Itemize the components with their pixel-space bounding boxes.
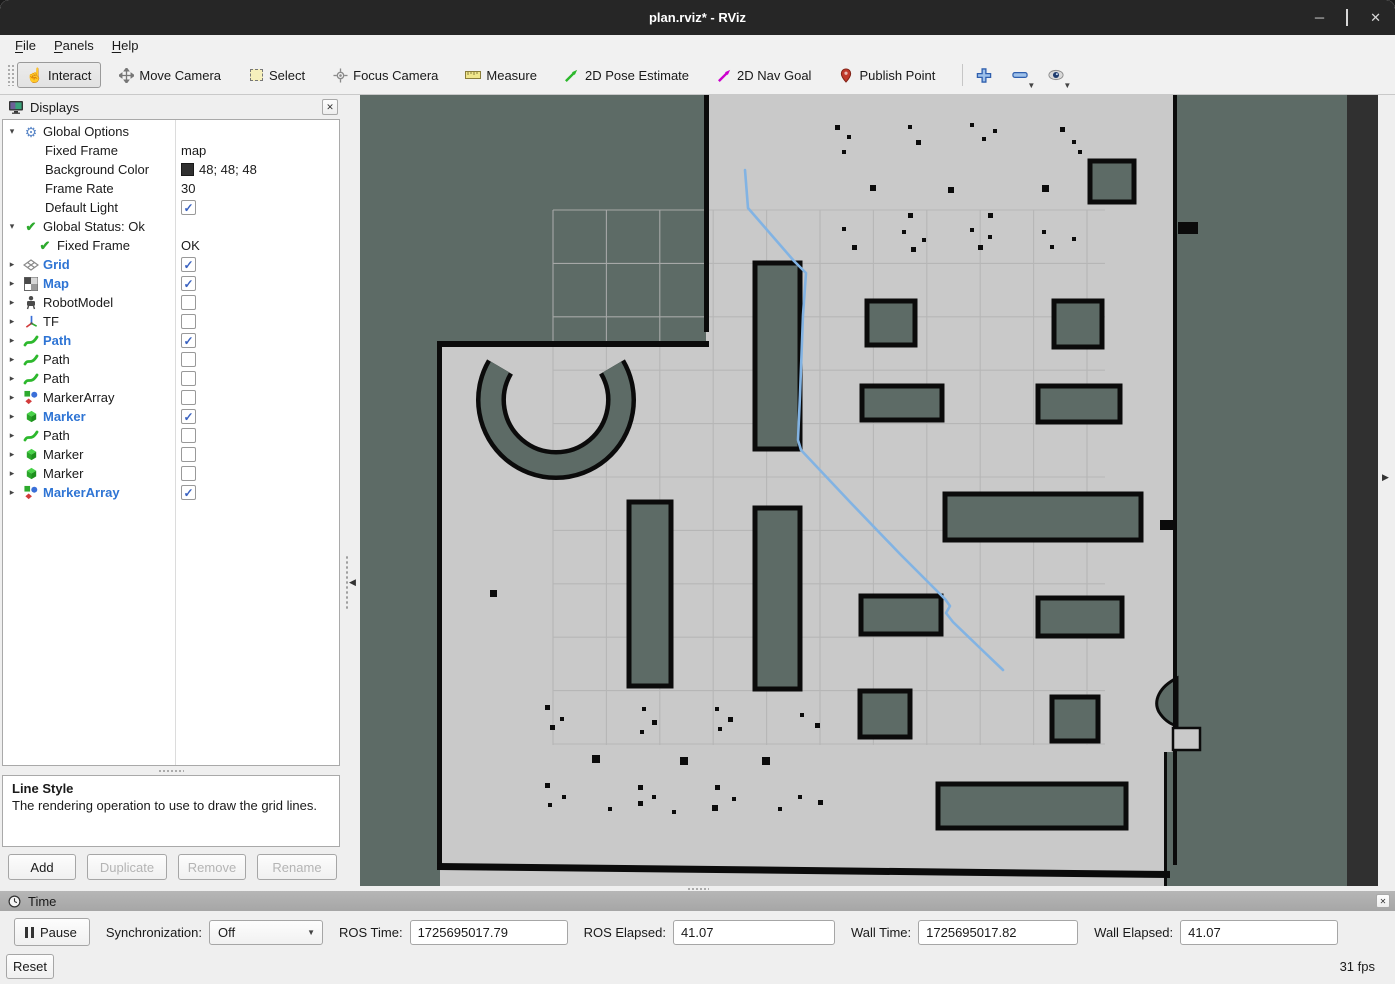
time-close-icon[interactable]: ✕ xyxy=(1376,894,1390,908)
display-row-global-status-ok[interactable]: ▾✔Global Status: Ok xyxy=(3,217,339,236)
display-row-path[interactable]: ▸Path xyxy=(3,369,339,388)
display-row-grid[interactable]: ▸Grid✓ xyxy=(3,255,339,274)
display-row-markerarray[interactable]: ▸MarkerArray xyxy=(3,388,339,407)
display-label: Fixed Frame xyxy=(57,238,130,253)
map-icon xyxy=(23,276,39,292)
display-row-background-color[interactable]: Background Color48; 48; 48 xyxy=(3,160,339,179)
enable-checkbox[interactable] xyxy=(181,314,196,329)
ruler-icon xyxy=(465,67,481,83)
pause-icon xyxy=(25,927,34,938)
toolbar-extra: ▼▼ xyxy=(973,63,1081,87)
sync-label: Synchronization: xyxy=(106,925,202,940)
map-doorway xyxy=(1173,728,1200,750)
display-row-path[interactable]: ▸Path✓ xyxy=(3,331,339,350)
display-row-fixed-frame[interactable]: Fixed Framemap xyxy=(3,141,339,160)
display-row-fixed-frame[interactable]: ✔Fixed FrameOK xyxy=(3,236,339,255)
expander-right-icon[interactable]: ▸ xyxy=(3,468,21,479)
display-label: Fixed Frame xyxy=(45,143,118,158)
right-splitter[interactable]: ▶ xyxy=(1378,95,1395,886)
rename-button[interactable]: Rename xyxy=(257,854,337,880)
color-swatch[interactable] xyxy=(181,163,194,176)
hand-icon: ☝ xyxy=(27,67,43,83)
ros-elapsed-input[interactable]: 41.07 xyxy=(673,920,835,945)
markerarray-icon xyxy=(23,485,39,501)
menu-panels[interactable]: Panels xyxy=(45,37,103,54)
check-icon: ✔ xyxy=(37,238,53,254)
green-arrow-icon xyxy=(564,67,580,83)
expander-right-icon[interactable]: ▸ xyxy=(3,373,21,384)
display-label: Global Options xyxy=(43,124,129,139)
toolbar-tools: ☝InteractMove CameraSelectFocus CameraMe… xyxy=(17,62,952,88)
markerarray-icon xyxy=(23,390,39,406)
enable-checkbox[interactable] xyxy=(181,466,196,481)
display-row-path[interactable]: ▸Path xyxy=(3,426,339,445)
expander-right-icon[interactable]: ▸ xyxy=(3,430,21,441)
path-icon xyxy=(23,428,39,444)
display-row-default-light[interactable]: Default Light✓ xyxy=(3,198,339,217)
pin-icon xyxy=(838,67,854,83)
wall-time-label: Wall Time: xyxy=(851,925,911,940)
enable-checkbox[interactable] xyxy=(181,447,196,462)
expander-right-icon[interactable]: ▸ xyxy=(3,335,21,346)
sync-dropdown[interactable]: Off ▼ xyxy=(209,920,323,945)
sync-value: Off xyxy=(218,925,235,940)
path-icon xyxy=(23,333,39,349)
display-label: Marker xyxy=(43,447,83,462)
menu-help[interactable]: Help xyxy=(103,37,148,54)
enable-checkbox[interactable]: ✓ xyxy=(181,257,196,272)
wall-elapsed-input[interactable]: 41.07 xyxy=(1180,920,1338,945)
time-panel-header: Time ✕ xyxy=(0,891,1395,911)
focus-icon xyxy=(332,67,348,83)
enable-checkbox[interactable] xyxy=(181,295,196,310)
enable-checkbox[interactable] xyxy=(181,390,196,405)
grid-icon xyxy=(23,257,39,273)
property-value[interactable]: map xyxy=(181,143,206,158)
displays-buttons: AddDuplicateRemoveRename xyxy=(0,847,342,886)
enable-checkbox[interactable]: ✓ xyxy=(181,200,196,215)
tf-icon xyxy=(23,314,39,330)
tool-2d-nav-goal[interactable]: 2D Nav Goal xyxy=(706,62,821,88)
property-value[interactable]: 30 xyxy=(181,181,195,196)
enable-checkbox[interactable] xyxy=(181,352,196,367)
display-row-map[interactable]: ▸Map✓ xyxy=(3,274,339,293)
property-value[interactable]: OK xyxy=(181,238,200,253)
marker-icon xyxy=(23,409,39,425)
expander-right-icon[interactable]: ▸ xyxy=(3,354,21,365)
render-background-band xyxy=(1347,95,1378,886)
display-row-markerarray[interactable]: ▸MarkerArray✓ xyxy=(3,483,339,502)
displays-splitter[interactable] xyxy=(0,766,342,775)
displays-panel: Displays ✕ ▾⚙Global OptionsFixed Framema… xyxy=(0,95,342,886)
pause-button[interactable]: Pause xyxy=(14,918,90,946)
menu-file[interactable]: File xyxy=(6,37,45,54)
menubar: FilePanelsHelp xyxy=(0,35,1395,56)
property-help-title: Line Style xyxy=(12,781,330,798)
display-label: Path xyxy=(43,352,70,367)
close-icon[interactable]: ✕ xyxy=(1370,11,1381,24)
enable-checkbox[interactable] xyxy=(181,371,196,386)
tool-measure[interactable]: Measure xyxy=(455,62,547,88)
display-label: Global Status: Ok xyxy=(43,219,145,234)
fps-counter: 31 fps xyxy=(1340,959,1375,974)
marker-icon xyxy=(23,447,39,463)
expander-right-icon[interactable]: ▸ xyxy=(3,259,21,270)
property-value[interactable]: 48; 48; 48 xyxy=(199,162,257,177)
rviz-window: plan.rviz* - RViz ─ ✕ FilePanelsHelp ☝In… xyxy=(0,0,1395,984)
robot-icon xyxy=(23,295,39,311)
property-help-text: The rendering operation to use to draw t… xyxy=(12,798,317,813)
window-title: plan.rviz* - RViz xyxy=(649,10,746,25)
check-icon: ✔ xyxy=(23,219,39,235)
display-label: MarkerArray xyxy=(43,485,120,500)
tool-move-camera[interactable]: Move Camera xyxy=(108,62,231,88)
wall-elapsed-label: Wall Elapsed: xyxy=(1094,925,1173,940)
display-label: MarkerArray xyxy=(43,390,115,405)
enable-checkbox[interactable]: ✓ xyxy=(181,276,196,291)
tool-publish-point[interactable]: Publish Point xyxy=(828,62,945,88)
expander-right-icon[interactable]: ▸ xyxy=(3,411,21,422)
time-panel: Time ✕ Pause Synchronization: Off ▼ ROS … xyxy=(0,886,1395,984)
clock-icon xyxy=(6,893,22,909)
toolbar: ☝InteractMove CameraSelectFocus CameraMe… xyxy=(0,56,1395,95)
tool-properties-button[interactable]: ▼ xyxy=(1045,63,1067,87)
remove-tool-button[interactable]: ▼ xyxy=(1009,63,1031,87)
select-box-icon xyxy=(248,67,264,83)
map-unknown-bottomright xyxy=(1166,752,1347,886)
enable-checkbox[interactable]: ✓ xyxy=(181,485,196,500)
display-label: Frame Rate xyxy=(45,181,114,196)
toolbar-separator xyxy=(962,64,963,86)
time-panel-title: Time xyxy=(28,894,56,909)
time-controls: Pause Synchronization: Off ▼ ROS Time:17… xyxy=(0,911,1395,953)
displays-tree: ▾⚙Global OptionsFixed FramemapBackground… xyxy=(2,119,340,766)
display-row-robotmodel[interactable]: ▸RobotModel xyxy=(3,293,339,312)
enable-checkbox[interactable]: ✓ xyxy=(181,409,196,424)
ros-elapsed-label: ROS Elapsed: xyxy=(584,925,666,940)
wall-time-input[interactable]: 1725695017.82 xyxy=(918,920,1078,945)
display-label: Default Light xyxy=(45,200,118,215)
maximize-icon[interactable] xyxy=(1346,11,1348,24)
eye-icon xyxy=(1048,67,1064,83)
display-label: Path xyxy=(43,333,71,348)
expand-right-icon[interactable]: ▶ xyxy=(1382,472,1389,483)
expander-right-icon[interactable]: ▸ xyxy=(3,392,21,403)
expander-right-icon[interactable]: ▸ xyxy=(3,278,21,289)
enable-checkbox[interactable]: ✓ xyxy=(181,333,196,348)
expander-right-icon[interactable]: ▸ xyxy=(3,297,21,308)
display-label: Marker xyxy=(43,409,86,424)
titlebar: plan.rviz* - RViz ─ ✕ xyxy=(0,0,1395,35)
display-label: Grid xyxy=(43,257,70,272)
enable-checkbox[interactable] xyxy=(181,428,196,443)
tool-focus-camera[interactable]: Focus Camera xyxy=(322,62,448,88)
magenta-arrow-icon xyxy=(716,67,732,83)
toolbar-drag-handle[interactable] xyxy=(7,64,14,86)
expander-right-icon[interactable]: ▸ xyxy=(3,449,21,460)
duplicate-button[interactable]: Duplicate xyxy=(87,854,167,880)
reset-button[interactable]: Reset xyxy=(6,954,54,979)
display-row-path[interactable]: ▸Path xyxy=(3,350,339,369)
display-label: TF xyxy=(43,314,59,329)
add-tool-button[interactable] xyxy=(973,63,995,87)
expander-down-icon[interactable]: ▾ xyxy=(3,221,21,232)
time-panel-bottom: Reset 31 fps xyxy=(0,953,1395,984)
display-row-marker[interactable]: ▸Marker✓ xyxy=(3,407,339,426)
displays-panel-header: Displays ✕ xyxy=(0,95,342,119)
path-icon xyxy=(23,371,39,387)
left-splitter[interactable]: ◀ xyxy=(342,95,360,886)
display-label: Path xyxy=(43,371,70,386)
minus-icon xyxy=(1012,67,1028,83)
ros-time-label: ROS Time: xyxy=(339,925,403,940)
displays-panel-title: Displays xyxy=(30,100,79,115)
move-icon xyxy=(118,67,134,83)
chevron-down-icon: ▼ xyxy=(307,928,315,937)
display-label: RobotModel xyxy=(43,295,113,310)
tool-interact[interactable]: ☝Interact xyxy=(17,62,101,88)
display-row-marker[interactable]: ▸Marker xyxy=(3,464,339,483)
expander-right-icon[interactable]: ▸ xyxy=(3,316,21,327)
marker-icon xyxy=(23,466,39,482)
display-label: Map xyxy=(43,276,69,291)
display-row-tf[interactable]: ▸TF xyxy=(3,312,339,331)
plus-icon xyxy=(976,67,992,83)
add-button[interactable]: Add xyxy=(8,854,76,880)
expander-down-icon[interactable]: ▾ xyxy=(3,126,21,137)
display-label: Path xyxy=(43,428,70,443)
display-row-marker[interactable]: ▸Marker xyxy=(3,445,339,464)
minimize-icon[interactable]: ─ xyxy=(1315,11,1324,24)
chevron-down-icon: ▼ xyxy=(1063,81,1071,90)
collapse-left-icon[interactable]: ◀ xyxy=(349,577,356,588)
expander-right-icon[interactable]: ▸ xyxy=(3,487,21,498)
display-row-frame-rate[interactable]: Frame Rate30 xyxy=(3,179,339,198)
gear-icon: ⚙ xyxy=(23,124,39,140)
remove-button[interactable]: Remove xyxy=(178,854,246,880)
ros-time-input[interactable]: 1725695017.79 xyxy=(410,920,568,945)
display-row-global-options[interactable]: ▾⚙Global Options xyxy=(3,122,339,141)
property-help-box: Line Style The rendering operation to us… xyxy=(2,775,340,847)
chevron-down-icon: ▼ xyxy=(1027,81,1035,90)
render-viewport[interactable] xyxy=(360,95,1378,886)
display-label: Marker xyxy=(43,466,83,481)
path-icon xyxy=(23,352,39,368)
display-label: Background Color xyxy=(45,162,149,177)
displays-panel-icon xyxy=(8,99,24,115)
tool-2d-pose-estimate[interactable]: 2D Pose Estimate xyxy=(554,62,699,88)
tool-select[interactable]: Select xyxy=(238,62,315,88)
displays-close-icon[interactable]: ✕ xyxy=(322,99,338,115)
